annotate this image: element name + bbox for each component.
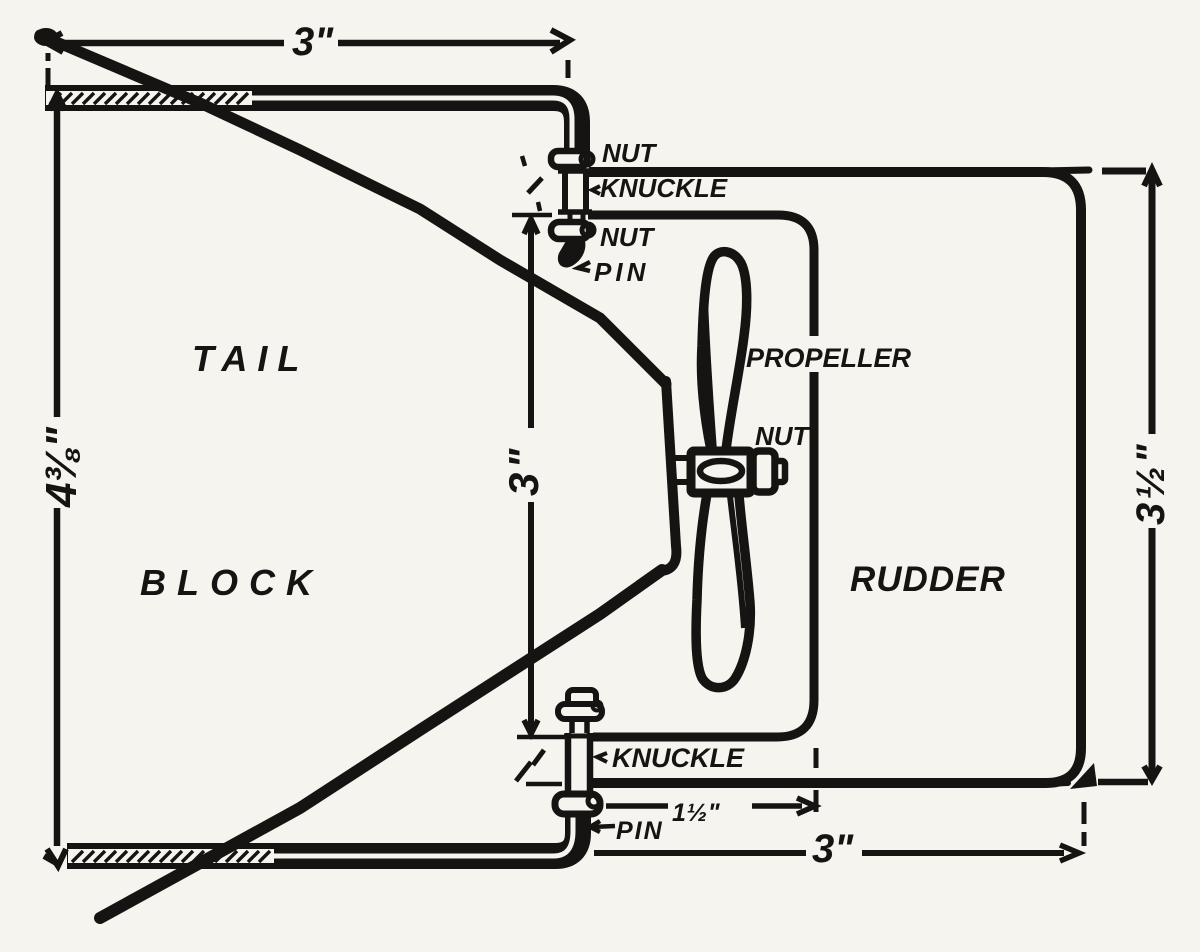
svg-text:3": 3" [292, 20, 334, 64]
svg-text:TAIL: TAIL [192, 338, 309, 379]
svg-text:3": 3" [500, 445, 547, 496]
svg-text:BLOCK: BLOCK [140, 562, 323, 603]
svg-text:4⅜": 4⅜" [37, 426, 86, 508]
svg-text:KNUCKLE: KNUCKLE [600, 173, 728, 203]
svg-text:3½": 3½" [1129, 441, 1173, 525]
svg-text:KNUCKLE: KNUCKLE [612, 743, 745, 773]
svg-text:RUDDER: RUDDER [850, 560, 1006, 599]
svg-text:3": 3" [812, 827, 854, 871]
svg-text:PIN: PIN [616, 817, 664, 845]
svg-text:NUT: NUT [602, 138, 658, 168]
svg-text:NUT: NUT [755, 421, 811, 451]
svg-text:PROPELLER: PROPELLER [746, 343, 912, 373]
svg-text:PIN: PIN [594, 257, 649, 287]
svg-text:NUT: NUT [600, 222, 656, 252]
svg-text:1½": 1½" [672, 799, 721, 827]
